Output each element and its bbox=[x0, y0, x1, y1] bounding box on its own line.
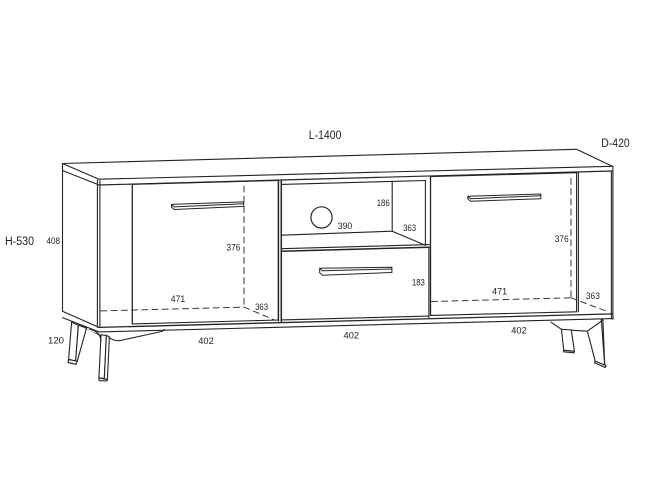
svg-text:390: 390 bbox=[338, 220, 353, 231]
svg-text:408: 408 bbox=[47, 235, 61, 246]
svg-text:D-420: D-420 bbox=[601, 138, 629, 150]
svg-text:471: 471 bbox=[171, 293, 186, 304]
svg-text:363: 363 bbox=[586, 290, 600, 301]
svg-text:402: 402 bbox=[511, 324, 527, 335]
svg-text:471: 471 bbox=[492, 286, 507, 297]
svg-text:363: 363 bbox=[403, 222, 416, 233]
svg-text:H-530: H-530 bbox=[5, 236, 34, 248]
svg-text:402: 402 bbox=[198, 335, 214, 346]
svg-text:376: 376 bbox=[227, 241, 241, 252]
svg-text:186: 186 bbox=[377, 197, 390, 208]
svg-text:376: 376 bbox=[555, 233, 569, 244]
svg-text:183: 183 bbox=[412, 277, 425, 288]
svg-text:L-1400: L-1400 bbox=[309, 130, 342, 142]
svg-text:120: 120 bbox=[48, 335, 64, 346]
svg-text:402: 402 bbox=[344, 329, 360, 340]
svg-text:363: 363 bbox=[255, 301, 268, 312]
